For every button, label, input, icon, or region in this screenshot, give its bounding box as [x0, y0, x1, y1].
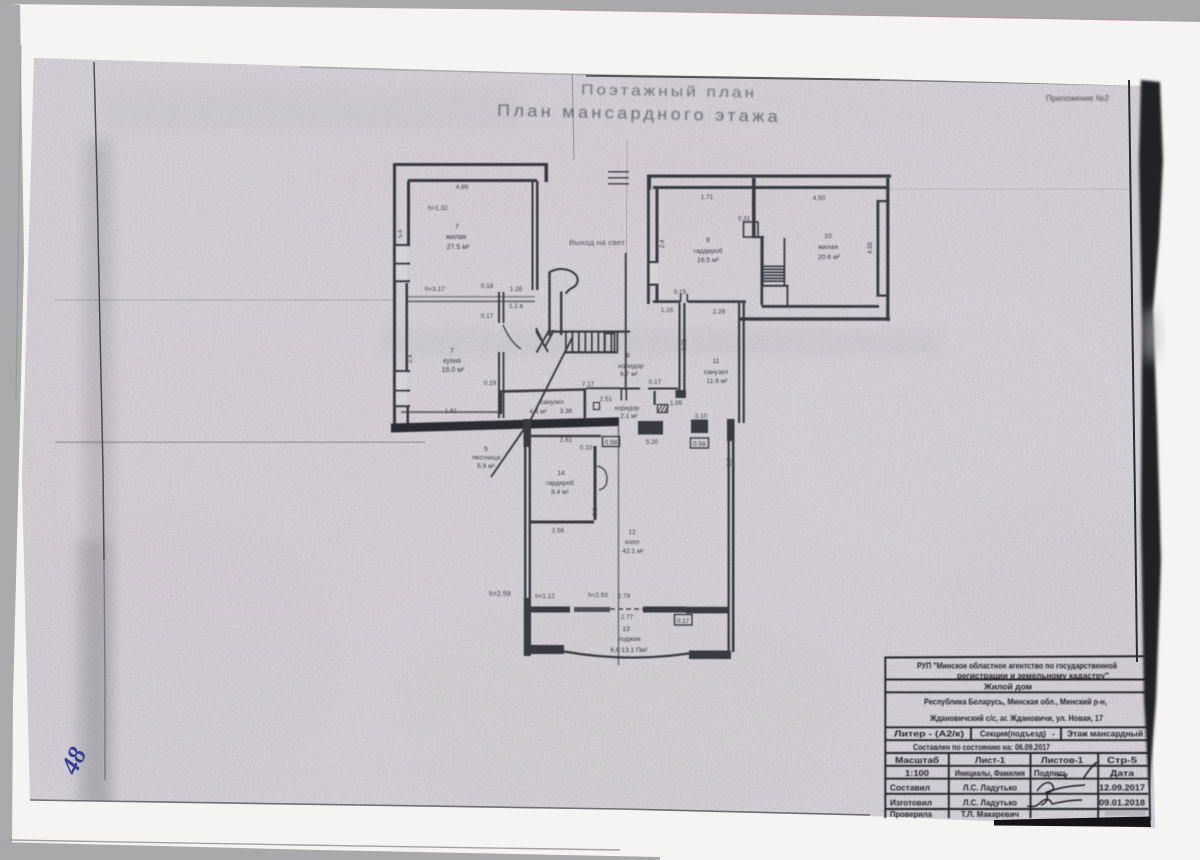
svg-text:42.1 м²: 42.1 м² — [622, 548, 644, 555]
svg-text:0.19: 0.19 — [484, 380, 497, 387]
svg-text:4.89: 4.89 — [456, 184, 469, 191]
svg-text:Литер - (А2/к): Литер - (А2/к) — [894, 729, 964, 739]
svg-text:0.17: 0.17 — [649, 379, 662, 386]
svg-text:1.79: 1.79 — [618, 593, 631, 600]
svg-text:санузел: санузел — [540, 399, 564, 406]
svg-text:регистрации и земельному кадас: регистрации и земельному кадастру" — [957, 671, 1109, 681]
svg-text:2.51: 2.51 — [600, 396, 613, 403]
svg-text:1.61: 1.61 — [445, 408, 458, 415]
svg-text:2.61: 2.61 — [560, 437, 573, 444]
svg-text:5: 5 — [484, 446, 488, 453]
svg-text:0.10: 0.10 — [580, 445, 593, 452]
svg-text:5.9 м²: 5.9 м² — [477, 463, 496, 470]
svg-text:0.31: 0.31 — [738, 216, 751, 223]
svg-text:10: 10 — [824, 233, 832, 240]
svg-text:Стр-5: Стр-5 — [1107, 755, 1137, 765]
svg-text:4.50: 4.50 — [813, 195, 826, 202]
svg-text:0.17: 0.17 — [677, 618, 690, 625]
svg-text:Л.С. Ладутько: Л.С. Ладутько — [963, 798, 1017, 808]
svg-text:гардероб: гардероб — [694, 247, 723, 255]
svg-text:Инициалы, Фамилия: Инициалы, Фамилия — [955, 768, 1025, 778]
svg-text:0.58: 0.58 — [605, 440, 618, 447]
svg-text:h=3.17: h=3.17 — [425, 286, 445, 293]
svg-text:7: 7 — [455, 224, 459, 231]
svg-text:1.26: 1.26 — [510, 286, 523, 293]
svg-text:11: 11 — [713, 358, 720, 365]
svg-text:7: 7 — [450, 348, 454, 355]
svg-text:4.58: 4.58 — [868, 242, 874, 254]
svg-text:3.03: 3.03 — [682, 339, 688, 351]
svg-text:1.2 в: 1.2 в — [509, 303, 524, 310]
svg-text:Республика Беларусь, Минская о: Республика Беларусь, Минская обл., Минск… — [924, 697, 1107, 707]
svg-text:холл: холл — [625, 539, 640, 546]
svg-text:-: - — [1052, 729, 1055, 739]
svg-text:Листов-1: Листов-1 — [1041, 755, 1083, 765]
svg-text:14: 14 — [557, 470, 565, 477]
svg-text:12: 12 — [628, 529, 636, 536]
svg-text:лоджия: лоджия — [618, 636, 641, 643]
svg-text:Масштаб: Масштаб — [895, 755, 939, 765]
svg-text:h=2.93: h=2.93 — [588, 592, 608, 599]
svg-text:13: 13 — [622, 626, 630, 633]
svg-text:Лист-1: Лист-1 — [975, 755, 1005, 765]
svg-text:3.36: 3.36 — [560, 408, 573, 415]
svg-text:8.4 м²: 8.4 м² — [551, 489, 570, 496]
svg-text:Л.С. Ладутько: Л.С. Ладутько — [963, 783, 1017, 793]
svg-text:8: 8 — [626, 353, 630, 360]
svg-text:коридор: коридор — [618, 363, 643, 370]
svg-text:2.77: 2.77 — [621, 614, 634, 621]
svg-text:h=1.32: h=1.32 — [428, 205, 448, 212]
svg-text:Подпись: Подпись — [1034, 768, 1068, 778]
svg-text:РУП "Минское областное агентст: РУП "Минское областное агентство по госу… — [917, 661, 1117, 671]
svg-text:2.4: 2.4 — [660, 239, 666, 248]
svg-text:жилая: жилая — [446, 234, 467, 241]
svg-text:5.4: 5.4 — [398, 229, 404, 238]
svg-text:7.17: 7.17 — [582, 381, 595, 388]
svg-text:16.5 м²: 16.5 м² — [697, 257, 720, 264]
svg-text:коридор: коридор — [615, 405, 640, 412]
svg-text:2.1 м²: 2.1 м² — [620, 413, 637, 420]
svg-text:2.56: 2.56 — [552, 528, 565, 535]
svg-text:2.4: 2.4 — [408, 354, 414, 363]
svg-text:Ждановичский с/с, аг. Жданович: Ждановичский с/с, аг. Ждановичи, ул. Нов… — [929, 713, 1103, 723]
svg-text:гардероб: гардероб — [546, 479, 574, 487]
svg-text:3.10: 3.10 — [695, 413, 708, 420]
svg-text:Дата: Дата — [1110, 768, 1134, 778]
svg-text:Изготовил: Изготовил — [890, 798, 932, 808]
svg-text:санузел: санузел — [704, 369, 728, 376]
svg-text:1.71: 1.71 — [701, 194, 714, 201]
svg-text:Секция(подъезд): Секция(подъезд) — [980, 729, 1046, 739]
svg-text:9: 9 — [706, 237, 710, 244]
svg-text:11.6 м²: 11.6 м² — [707, 378, 729, 385]
svg-text:Т.Л. Макаревич: Т.Л. Макаревич — [961, 810, 1019, 819]
svg-text:0.17: 0.17 — [481, 313, 494, 320]
svg-text:0.15: 0.15 — [674, 289, 687, 296]
svg-text:Поэтажный план: Поэтажный план — [581, 81, 757, 101]
svg-text:16.0 м²: 16.0 м² — [442, 367, 465, 374]
svg-text:1.16: 1.16 — [661, 307, 674, 314]
svg-text:1:100: 1:100 — [905, 768, 929, 778]
svg-text:Жилой дом: Жилой дом — [983, 682, 1032, 692]
svg-text:2.28: 2.28 — [713, 309, 726, 316]
svg-text:кухня: кухня — [443, 358, 461, 365]
svg-text:Составлен по состоянию на: 06.: Составлен по состоянию на: 06.09.2017 — [913, 742, 1050, 752]
svg-text:1.9: 1.9 — [727, 457, 733, 466]
svg-text:27.5 м²: 27.5 м² — [447, 244, 470, 251]
svg-text:12.09.2017: 12.09.2017 — [1099, 783, 1145, 793]
svg-text:лестница: лестница — [472, 455, 501, 462]
svg-text:4.4 м²: 4.4 м² — [529, 409, 546, 416]
svg-text:0.58: 0.58 — [693, 441, 706, 448]
svg-text:6.6:13.1 Пм²: 6.6:13.1 Пм² — [610, 647, 648, 654]
svg-text:5.20: 5.20 — [646, 439, 659, 446]
svg-text:09.01.2018: 09.01.2018 — [1099, 798, 1145, 808]
svg-text:0.18: 0.18 — [481, 283, 494, 290]
svg-text:Этаж мансардный: Этаж мансардный — [1067, 729, 1143, 739]
svg-text:Приложение №2: Приложение №2 — [1046, 93, 1109, 103]
svg-text:1.09: 1.09 — [670, 400, 683, 407]
svg-text:h=2.59: h=2.59 — [489, 591, 511, 598]
svg-text:Проверила: Проверила — [890, 810, 932, 819]
svg-text:жилая: жилая — [818, 244, 838, 251]
svg-text:h=1.12: h=1.12 — [535, 593, 555, 600]
svg-text:3.3: 3.3 — [593, 507, 599, 516]
svg-text:6.7 м²: 6.7 м² — [620, 371, 639, 378]
svg-text:Выход на свет: Выход на свет — [569, 238, 626, 247]
svg-text:Составил: Составил — [890, 783, 930, 793]
svg-text:20.6 м²: 20.6 м² — [818, 254, 841, 261]
